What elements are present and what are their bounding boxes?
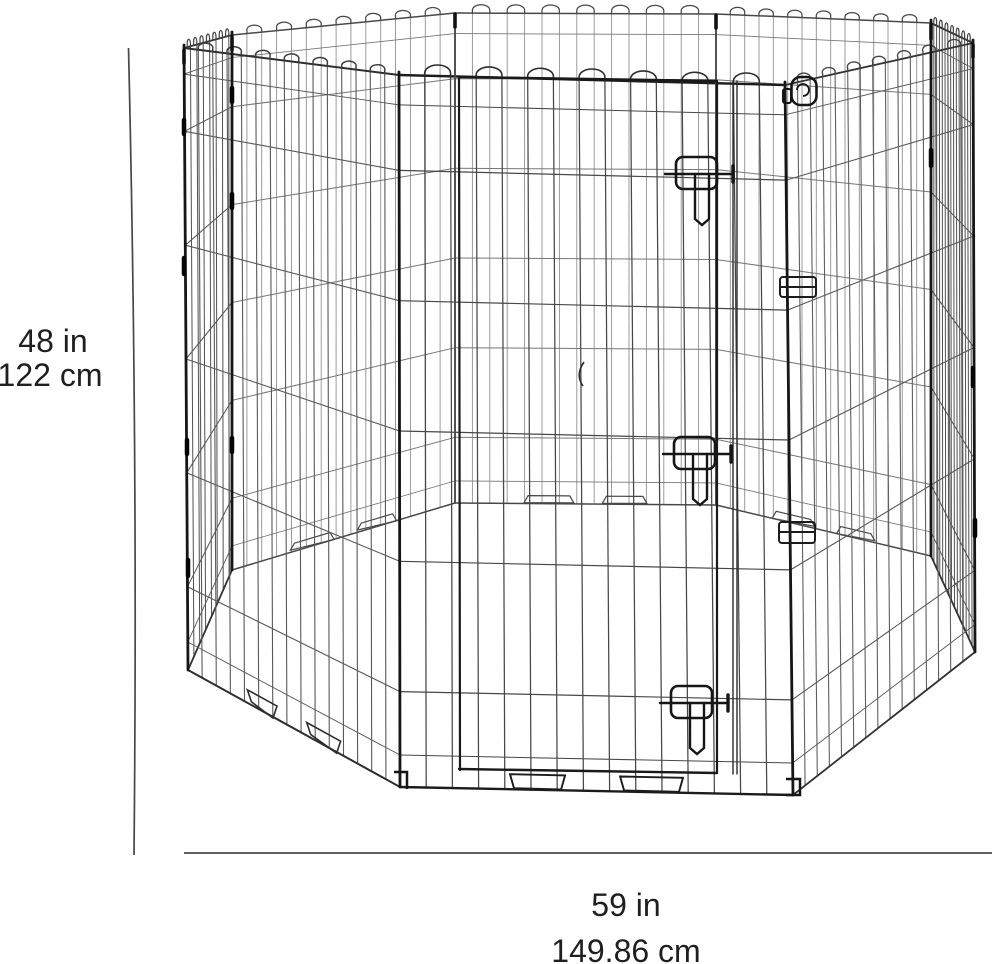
svg-text:122 cm: 122 cm [0, 357, 102, 393]
svg-text:48 in: 48 in [18, 323, 87, 359]
svg-text:149.86 cm: 149.86 cm [551, 933, 700, 964]
svg-text:59 in: 59 in [591, 887, 660, 923]
